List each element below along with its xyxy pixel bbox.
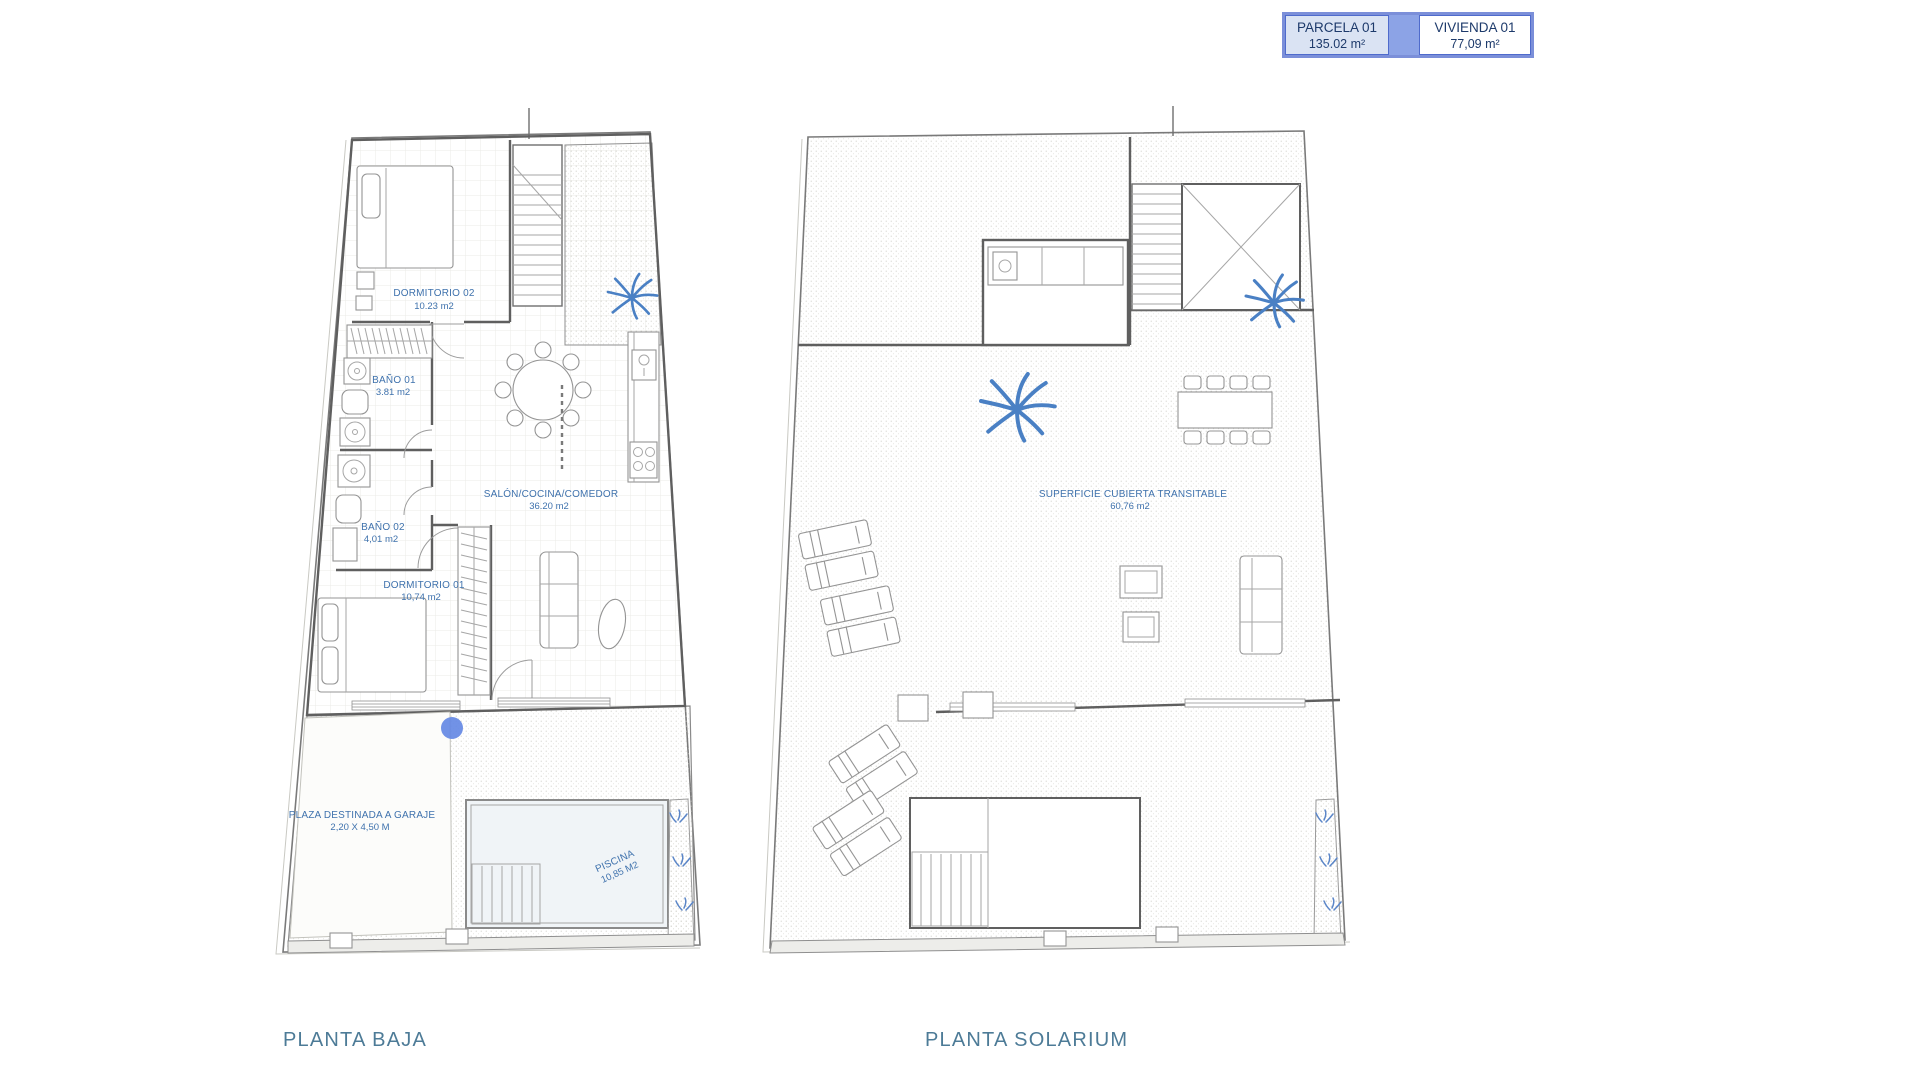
room-label-bano-02: BAÑO 02 [361, 520, 405, 533]
upper-terrace [565, 143, 661, 345]
drawing-sheet: PARCELA 01 135.02 m² VIVIENDA 01 77,09 m… [0, 0, 1920, 1080]
location-marker-dot [441, 717, 463, 739]
lower-stair-structure [910, 798, 1140, 928]
kitchen-counter [628, 332, 659, 482]
room-label-garaje: PLAZA DESTINADA A GARAJE [289, 810, 436, 821]
summer-kitchen [983, 240, 1128, 345]
room-label-dormitorio-01: DORMITORIO 01 [383, 580, 465, 591]
room-label-salon: SALÓN/COCINA/COMEDOR [484, 487, 619, 500]
outdoor-sofa [1240, 556, 1282, 654]
room-area-bano-02: 4,01 m2 [364, 534, 398, 545]
room-area-garaje: 2,20 X 4,50 M [330, 822, 389, 833]
pool [466, 800, 668, 928]
room-label-cubierta: SUPERFICIE CUBIERTA TRANSITABLE [1039, 489, 1227, 500]
closet-dormitorio-01 [458, 527, 490, 695]
plan-title-solarium: PLANTA SOLARIUM [925, 1029, 1128, 1052]
room-area-salon: 36.20 m2 [529, 501, 569, 512]
stair-void-x [1182, 184, 1300, 310]
room-area-dormitorio-02: 10.23 m2 [414, 301, 454, 312]
plan-planta-solarium: SUPERFICIE CUBIERTA TRANSITABLE 60,76 m2 [763, 106, 1350, 953]
bed-dormitorio-01 [318, 598, 426, 692]
plan-title-baja: PLANTA BAJA [283, 1029, 427, 1052]
room-area-cubierta: 60,76 m2 [1110, 501, 1150, 512]
plan-planta-baja: DORMITORIO 02 10.23 m2 BAÑO 01 3.81 m2 B… [276, 108, 700, 954]
stairs-2 [1132, 184, 1182, 310]
room-area-dormitorio-01: 10,74 m2 [401, 592, 441, 603]
room-label-dormitorio-02: DORMITORIO 02 [393, 288, 475, 299]
dining-table [495, 342, 591, 438]
bathroom-01-fixtures [340, 358, 370, 446]
stairs [511, 140, 563, 306]
wardrobe-dormitorio-02 [347, 325, 432, 358]
room-label-bano-01: BAÑO 01 [372, 373, 416, 386]
room-area-bano-01: 3.81 m2 [376, 387, 410, 398]
floor-plans-svg: DORMITORIO 02 10.23 m2 BAÑO 01 3.81 m2 B… [0, 0, 1920, 1080]
